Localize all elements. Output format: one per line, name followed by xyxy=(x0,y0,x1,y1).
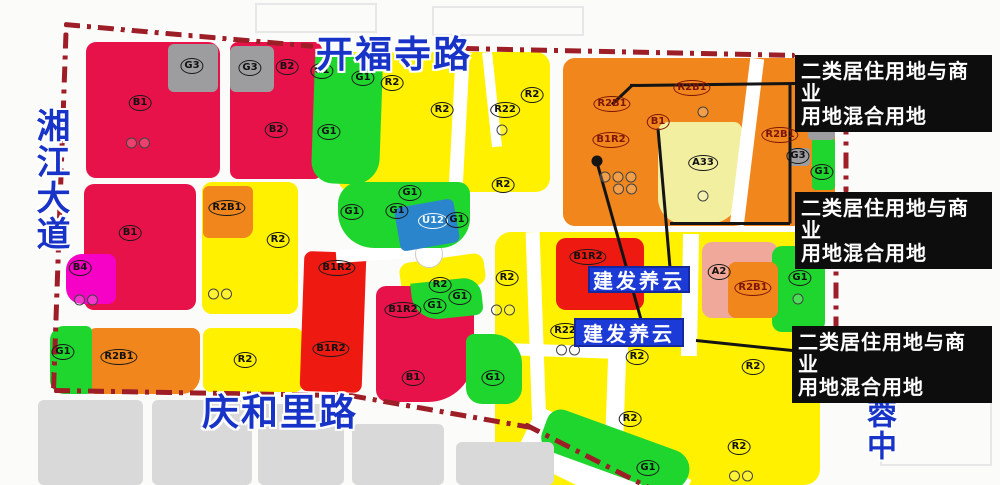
land-use-code-r2b1: R2B1 xyxy=(734,280,771,296)
parcel-a33 xyxy=(658,122,742,224)
project-label-jianfa-yangyun-2: 建发养云 xyxy=(574,318,684,347)
outside-block xyxy=(352,424,444,485)
land-use-code-g3: G3 xyxy=(238,60,261,76)
land-use-code-r22: R22 xyxy=(490,102,520,118)
land-use-code-g1: G1 xyxy=(51,344,74,360)
minor-plot-marks xyxy=(74,295,98,306)
road-label-qingheli-road: 庆和里路 xyxy=(202,382,358,436)
annotation-mixed-use-3: 二类居住用地与商业 用地混合用地 xyxy=(792,326,992,403)
land-use-code-r2: R2 xyxy=(619,411,642,427)
minor-plot-marks xyxy=(613,184,637,195)
land-use-code-b1: B1 xyxy=(402,370,425,386)
land-use-code-r2: R2 xyxy=(431,102,454,118)
land-use-code-g1: G1 xyxy=(423,298,446,314)
land-use-code-b4: B4 xyxy=(69,260,92,276)
minor-plot-marks xyxy=(491,305,515,316)
land-use-code-b1: B1 xyxy=(129,95,152,111)
land-use-code-b1r2: B1R2 xyxy=(592,132,629,148)
land-use-code-b1: B1 xyxy=(647,114,670,130)
minor-plot-marks xyxy=(729,471,753,482)
land-use-code-g1: G1 xyxy=(445,212,468,228)
land-use-code-g3: G3 xyxy=(180,58,203,74)
land-use-code-r2b1: R2B1 xyxy=(208,200,245,216)
land-use-code-r2: R2 xyxy=(492,177,515,193)
minor-plot-marks xyxy=(126,138,150,149)
annotation-line: 二类居住用地与商业 xyxy=(798,331,986,376)
parcel-g1-south xyxy=(466,334,522,404)
callout-line xyxy=(670,222,790,225)
minor-plot-marks xyxy=(698,191,709,202)
land-use-code-b1r2: B1R2 xyxy=(569,249,606,265)
land-use-code-g1: G1 xyxy=(340,204,363,220)
land-use-code-r2: R2 xyxy=(626,349,649,365)
outside-block xyxy=(456,442,554,485)
land-use-code-r2b1: R2B1 xyxy=(761,127,798,143)
annotation-line: 二类居住用地与商业 xyxy=(801,197,986,242)
annotation-line: 用地混合用地 xyxy=(801,105,986,127)
callout-dot xyxy=(592,156,603,167)
land-use-code-r2: R2 xyxy=(496,270,519,286)
land-use-code-g1: G1 xyxy=(481,370,504,386)
land-use-code-r2: R2 xyxy=(267,232,290,248)
minor-plot-marks xyxy=(793,294,804,305)
minor-plot-marks xyxy=(600,172,637,183)
land-use-code-r2: R2 xyxy=(521,87,544,103)
land-use-code-b2: B2 xyxy=(276,59,299,75)
land-use-code-b2: B2 xyxy=(265,122,288,138)
land-use-code-b1: B1 xyxy=(119,225,142,241)
land-use-code-g1: G1 xyxy=(317,124,340,140)
land-use-code-b1r2: B1R2 xyxy=(384,302,421,318)
minor-plot-marks xyxy=(208,289,232,300)
land-use-code-g1: G1 xyxy=(788,270,811,286)
land-use-code-a33: A33 xyxy=(688,155,718,171)
land-use-code-r2: R2 xyxy=(742,359,765,375)
minor-plot-marks xyxy=(497,125,508,136)
annotation-mixed-use-2: 二类居住用地与商业 用地混合用地 xyxy=(795,192,992,269)
road-label-kaifusi-road: 开福寺路 xyxy=(316,24,472,78)
annotation-line: 用地混合用地 xyxy=(801,242,986,264)
land-use-code-r2b1: R2B1 xyxy=(100,349,137,365)
minor-plot-marks xyxy=(698,107,709,118)
outside-block xyxy=(38,400,143,485)
land-use-code-r2b1: R2B1 xyxy=(673,80,710,96)
land-use-code-b1r2: B1R2 xyxy=(318,260,355,276)
land-use-code-r2: R2 xyxy=(429,277,452,293)
annotation-line: 二类居住用地与商业 xyxy=(801,60,986,105)
land-use-code-a2: A2 xyxy=(708,264,731,280)
land-use-code-g1: G1 xyxy=(448,289,471,305)
annotation-mixed-use-1: 二类居住用地与商业 用地混合用地 xyxy=(795,55,992,132)
land-use-code-b1r2: B1R2 xyxy=(312,341,349,357)
land-use-code-g1: G1 xyxy=(810,164,833,180)
annotation-line: 用地混合用地 xyxy=(798,376,986,398)
land-use-code-g1: G1 xyxy=(385,203,408,219)
road-label-xiangjiang-avenue: 湘江大道 xyxy=(26,108,75,252)
land-use-code-g3: G3 xyxy=(786,148,809,164)
zoning-map: G3G3B2G1B1B2G1G1R2R2R2R22R2G1G1G1U12G1B1… xyxy=(0,0,1000,485)
land-use-code-u12: U12 xyxy=(418,213,448,229)
land-use-code-r2: R2 xyxy=(728,439,751,455)
land-use-code-r2: R2 xyxy=(234,352,257,368)
land-use-code-g1: G1 xyxy=(398,185,421,201)
land-use-code-g1: G1 xyxy=(636,460,659,476)
land-use-code-r2b1: R2B1 xyxy=(593,96,630,112)
project-label-jianfa-yangyun-1: 建发养云 xyxy=(588,266,690,293)
